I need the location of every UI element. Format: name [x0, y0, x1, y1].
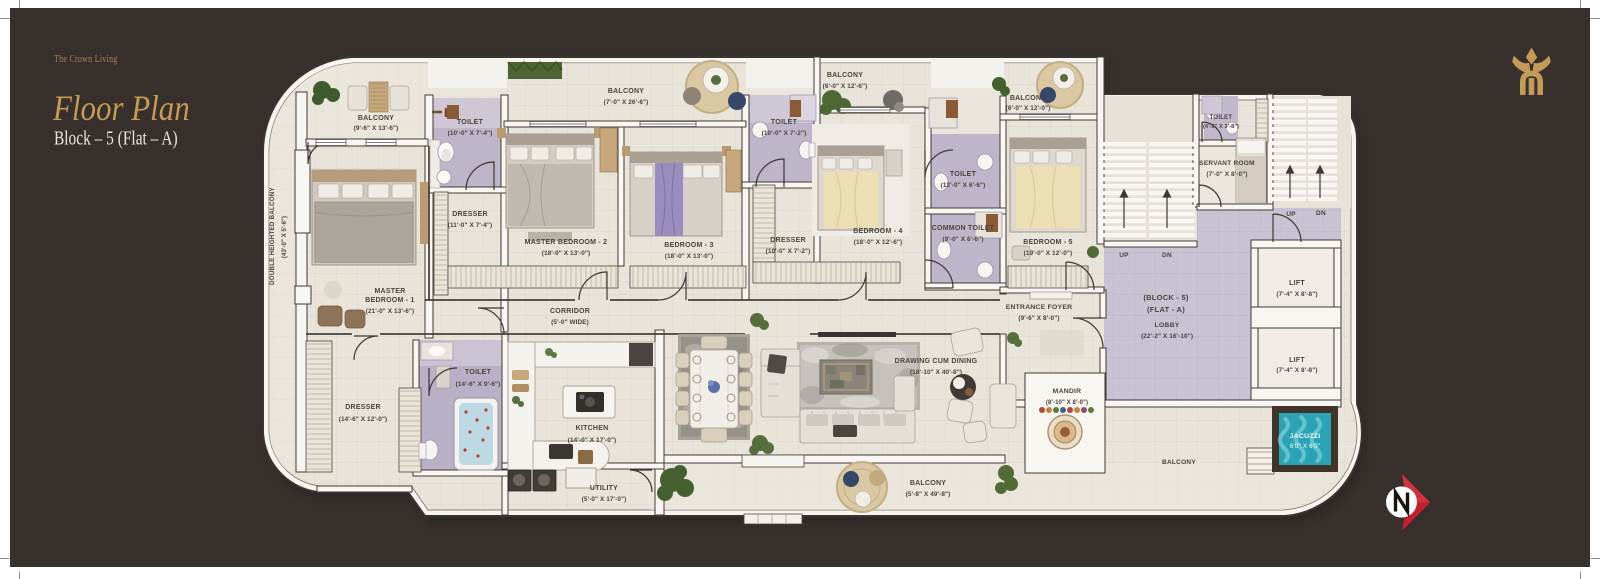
svg-text:TOILET: TOILET — [771, 119, 798, 126]
svg-text:BEDROOM - 5: BEDROOM - 5 — [1023, 239, 1072, 246]
svg-text:(5'-8" X 49'-8"): (5'-8" X 49'-8") — [906, 491, 951, 498]
svg-text:DN: DN — [1162, 252, 1172, 259]
svg-text:(4'-8" X 3'-8"): (4'-8" X 3'-8") — [1203, 124, 1239, 130]
svg-text:(10'-0" X 7'-2"): (10'-0" X 7'-2") — [766, 248, 811, 255]
svg-text:(18'-0" X 13'-0"): (18'-0" X 13'-0") — [665, 253, 713, 260]
svg-text:(8'-10" X 8'-0"): (8'-10" X 8'-0") — [1046, 400, 1088, 406]
svg-text:(14'-6" X 12'-0"): (14'-6" X 12'-0") — [339, 416, 387, 423]
svg-text:BEDROOM - 3: BEDROOM - 3 — [664, 242, 713, 249]
svg-text:(11'-0" X 7'-4"): (11'-0" X 7'-4") — [448, 222, 492, 229]
svg-text:Block – 5 (Flat – A): Block – 5 (Flat – A) — [54, 127, 178, 149]
svg-text:LIFT: LIFT — [1289, 280, 1305, 287]
svg-text:DRESSER: DRESSER — [345, 404, 381, 411]
svg-text:(18'-0" X 12'-6"): (18'-0" X 12'-6") — [854, 239, 902, 246]
svg-text:(5'-0" X 17'-0"): (5'-0" X 17'-0") — [582, 496, 627, 503]
svg-text:(18'-10" X 40'-8"): (18'-10" X 40'-8") — [910, 369, 962, 376]
svg-text:LOBBY: LOBBY — [1154, 322, 1179, 329]
svg-text:(18'-0" X 13'-0"): (18'-0" X 13'-0") — [542, 250, 590, 257]
svg-text:(7'-0" X 8'-0"): (7'-0" X 8'-0") — [1206, 171, 1247, 178]
svg-text:(FLAT - A): (FLAT - A) — [1147, 305, 1185, 314]
svg-text:BALCONY: BALCONY — [1162, 459, 1196, 466]
svg-text:Floor Plan: Floor Plan — [52, 89, 190, 129]
svg-text:(21'-0" X 13'-6"): (21'-0" X 13'-6") — [366, 308, 414, 315]
svg-text:(7'-0" X 26'-6"): (7'-0" X 26'-6") — [604, 99, 649, 106]
svg-text:MANDIR: MANDIR — [1053, 388, 1082, 395]
svg-text:SERVANT ROOM: SERVANT ROOM — [1199, 160, 1255, 167]
svg-text:ENTRANCE FOYER: ENTRANCE FOYER — [1006, 304, 1073, 311]
svg-text:(7'-4" X 8'-8"): (7'-4" X 8'-8") — [1276, 367, 1317, 374]
svg-text:(14'-0" X 17'-0"): (14'-0" X 17'-0") — [568, 437, 616, 444]
svg-text:(14'-6" X 9'-6"): (14'-6" X 9'-6") — [456, 381, 501, 388]
svg-text:CORRIDOR: CORRIDOR — [550, 308, 590, 315]
svg-text:MASTER: MASTER — [374, 288, 405, 295]
svg-text:(9'-0" X 6'-6"): (9'-0" X 6'-6") — [942, 236, 983, 243]
svg-text:LIFT: LIFT — [1289, 357, 1305, 364]
svg-text:BALCONY: BALCONY — [358, 115, 394, 122]
svg-text:UP: UP — [1119, 252, 1129, 259]
svg-text:BALCONY: BALCONY — [1010, 95, 1046, 102]
svg-text:BEDROOM - 4: BEDROOM - 4 — [853, 228, 902, 235]
svg-text:(9'-6" X 8'-0"): (9'-6" X 8'-0") — [1018, 315, 1059, 322]
svg-text:MASTER BEDROOM - 2: MASTER BEDROOM - 2 — [525, 239, 608, 246]
svg-text:UP: UP — [1286, 211, 1296, 218]
svg-text:DN: DN — [1316, 210, 1326, 217]
svg-text:(5'-0" WIDE): (5'-0" WIDE) — [551, 319, 589, 326]
svg-text:BALCONY: BALCONY — [910, 480, 946, 487]
svg-text:COMMON TOILET: COMMON TOILET — [932, 225, 995, 232]
svg-text:DRESSER: DRESSER — [770, 237, 806, 244]
svg-text:BALCONY: BALCONY — [608, 88, 644, 95]
svg-text:(6'-0" X 12'-0"): (6'-0" X 12'-0") — [1006, 105, 1051, 112]
svg-text:DRAWING CUM DINING: DRAWING CUM DINING — [895, 358, 978, 365]
svg-text:The Crown Living: The Crown Living — [54, 54, 118, 65]
svg-text:6'0" X 6'0": 6'0" X 6'0" — [1290, 443, 1320, 450]
svg-text:(43'-0" X 5'-6"): (43'-0" X 5'-6") — [282, 216, 288, 258]
svg-text:TOILET: TOILET — [1210, 115, 1233, 121]
svg-text:TOILET: TOILET — [465, 369, 492, 376]
svg-text:JACUZZI: JACUZZI — [1290, 433, 1321, 440]
svg-text:DOUBLE HEIGHTED BALCONY: DOUBLE HEIGHTED BALCONY — [269, 186, 276, 284]
svg-text:UTILITY: UTILITY — [590, 485, 618, 492]
svg-text:BEDROOM - 1: BEDROOM - 1 — [365, 297, 414, 304]
svg-text:(19'-0" X 12'-0"): (19'-0" X 12'-0") — [1024, 250, 1072, 257]
svg-text:(12'-0" X 6'-6"): (12'-0" X 6'-6") — [941, 182, 986, 189]
svg-text:DRESSER: DRESSER — [452, 211, 488, 218]
svg-text:(6'-0" X 12'-6"): (6'-0" X 12'-6") — [823, 83, 868, 90]
svg-text:TOILET: TOILET — [457, 119, 484, 126]
svg-text:(10'-0" X 7'-2"): (10'-0" X 7'-2") — [762, 130, 807, 137]
svg-text:BALCONY: BALCONY — [827, 72, 863, 79]
svg-text:(7'-4" X 8'-8"): (7'-4" X 8'-8") — [1276, 291, 1317, 298]
svg-text:(BLOCK - 5): (BLOCK - 5) — [1143, 293, 1188, 302]
svg-text:KITCHEN: KITCHEN — [576, 425, 609, 432]
svg-text:(22'-2" X 16'-10"): (22'-2" X 16'-10") — [1141, 333, 1193, 340]
svg-text:TOILET: TOILET — [950, 171, 977, 178]
svg-text:(10'-0" X 7'-4"): (10'-0" X 7'-4") — [448, 130, 493, 137]
svg-text:(9'-6" X 13'-6"): (9'-6" X 13'-6") — [354, 125, 399, 132]
